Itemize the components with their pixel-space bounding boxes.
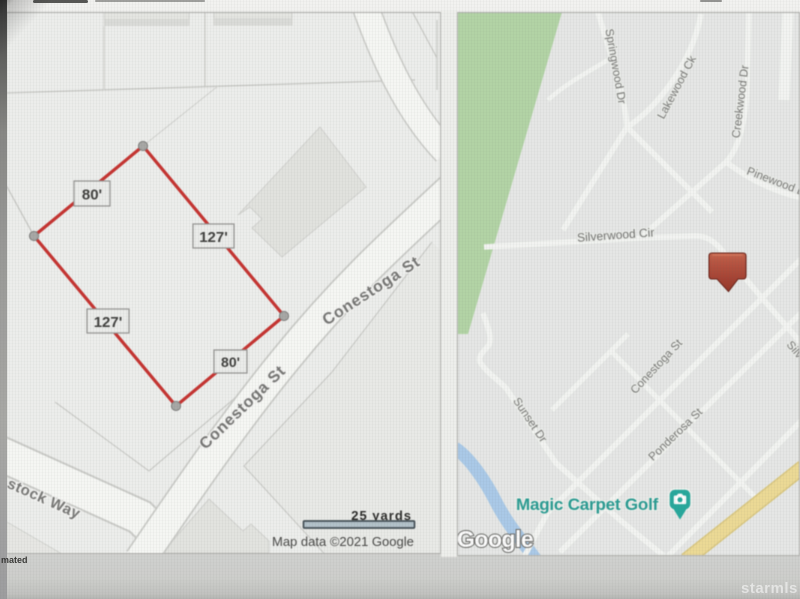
svg-text:80': 80'	[82, 187, 102, 204]
svg-text:Magic Carpet Golf: Magic Carpet Golf	[516, 495, 659, 514]
svg-text:127': 127'	[94, 314, 123, 331]
svg-text:Map data ©2021 Google: Map data ©2021 Google	[272, 534, 414, 549]
svg-text:127': 127'	[199, 229, 228, 246]
svg-text:80': 80'	[221, 354, 240, 370]
svg-text:Google: Google	[457, 526, 533, 552]
